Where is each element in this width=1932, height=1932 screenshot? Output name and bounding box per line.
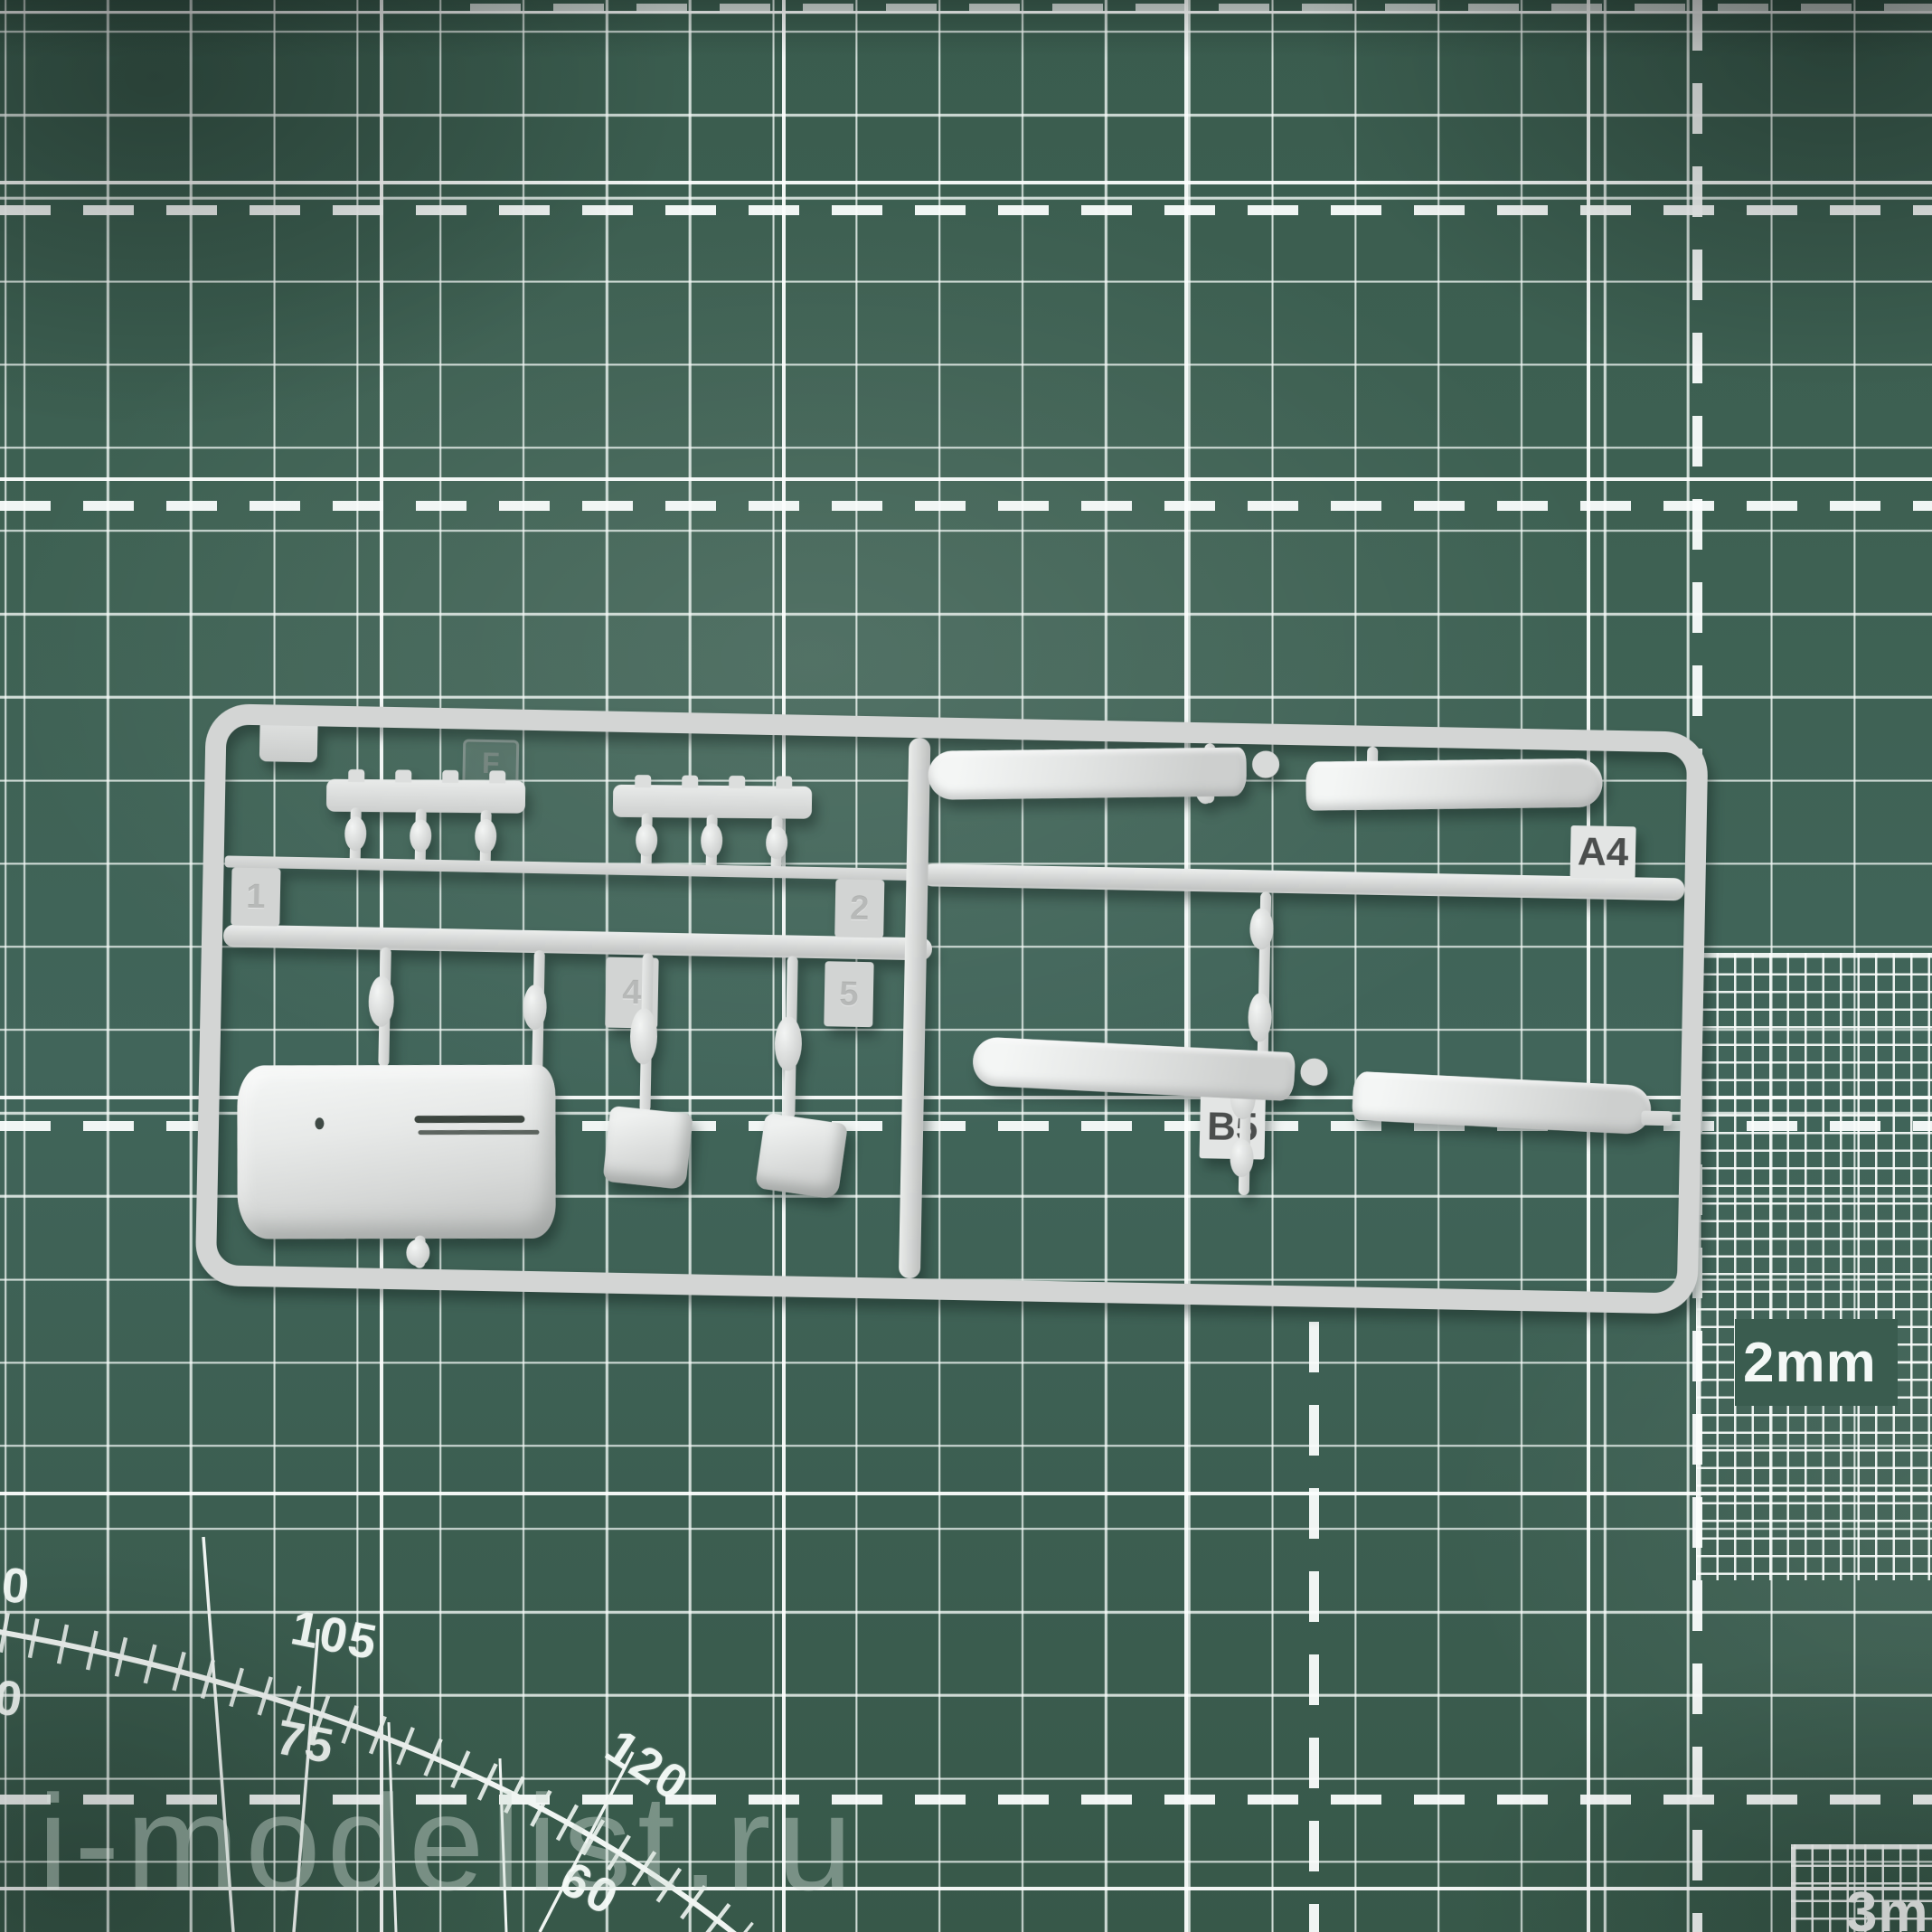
cowling-slit — [418, 1130, 539, 1135]
photo-root: 90 90 105 75 120 60 2mm 3mm F — [0, 0, 1932, 1932]
number-tab-1: 1 — [231, 868, 280, 927]
angle-label-outer-90: 90 — [0, 1554, 33, 1615]
strip-tooth — [776, 776, 792, 788]
strip-tooth — [729, 776, 745, 788]
dashed-line-horizontal — [0, 501, 1932, 511]
fine-grid-label-2mm: 2mm — [1743, 1331, 1877, 1395]
strip-tooth — [682, 775, 698, 787]
part-scoop-2 — [755, 1113, 848, 1200]
strip-tooth — [489, 770, 505, 783]
cowling-slit — [414, 1116, 524, 1123]
blank-tab — [259, 725, 318, 762]
label-tab-a4: A4 — [1570, 825, 1636, 879]
grid-major-line — [0, 181, 1932, 184]
fine-grid-label-3mm: 3mm — [1846, 1880, 1932, 1932]
grid-major-line — [0, 477, 1932, 481]
gate-nub — [1641, 1111, 1672, 1126]
strip-tooth — [395, 769, 411, 782]
strip-tooth — [442, 770, 458, 783]
dashed-line-vertical — [1309, 1322, 1319, 1932]
watermark-text: i-modelist.ru — [38, 1765, 1304, 1921]
dashed-line-horizontal — [470, 4, 1932, 14]
number-tab-5: 5 — [824, 961, 873, 1027]
number-tab-2: 2 — [834, 879, 884, 938]
dashed-line-horizontal — [0, 205, 1932, 215]
cowling-hole — [315, 1117, 324, 1129]
part-scoop-1 — [602, 1106, 693, 1190]
part-cowling — [237, 1065, 555, 1239]
propeller-blade-right — [1305, 759, 1603, 811]
propeller-hub — [1252, 750, 1280, 778]
propeller-blade-left — [928, 748, 1247, 800]
strip-tooth — [348, 769, 364, 782]
sprue: F 1 2 4 — [195, 703, 1709, 1315]
strip-tooth — [635, 775, 651, 787]
fine-grid-2mm — [1696, 953, 1932, 1580]
propeller-hub — [1299, 1057, 1329, 1087]
